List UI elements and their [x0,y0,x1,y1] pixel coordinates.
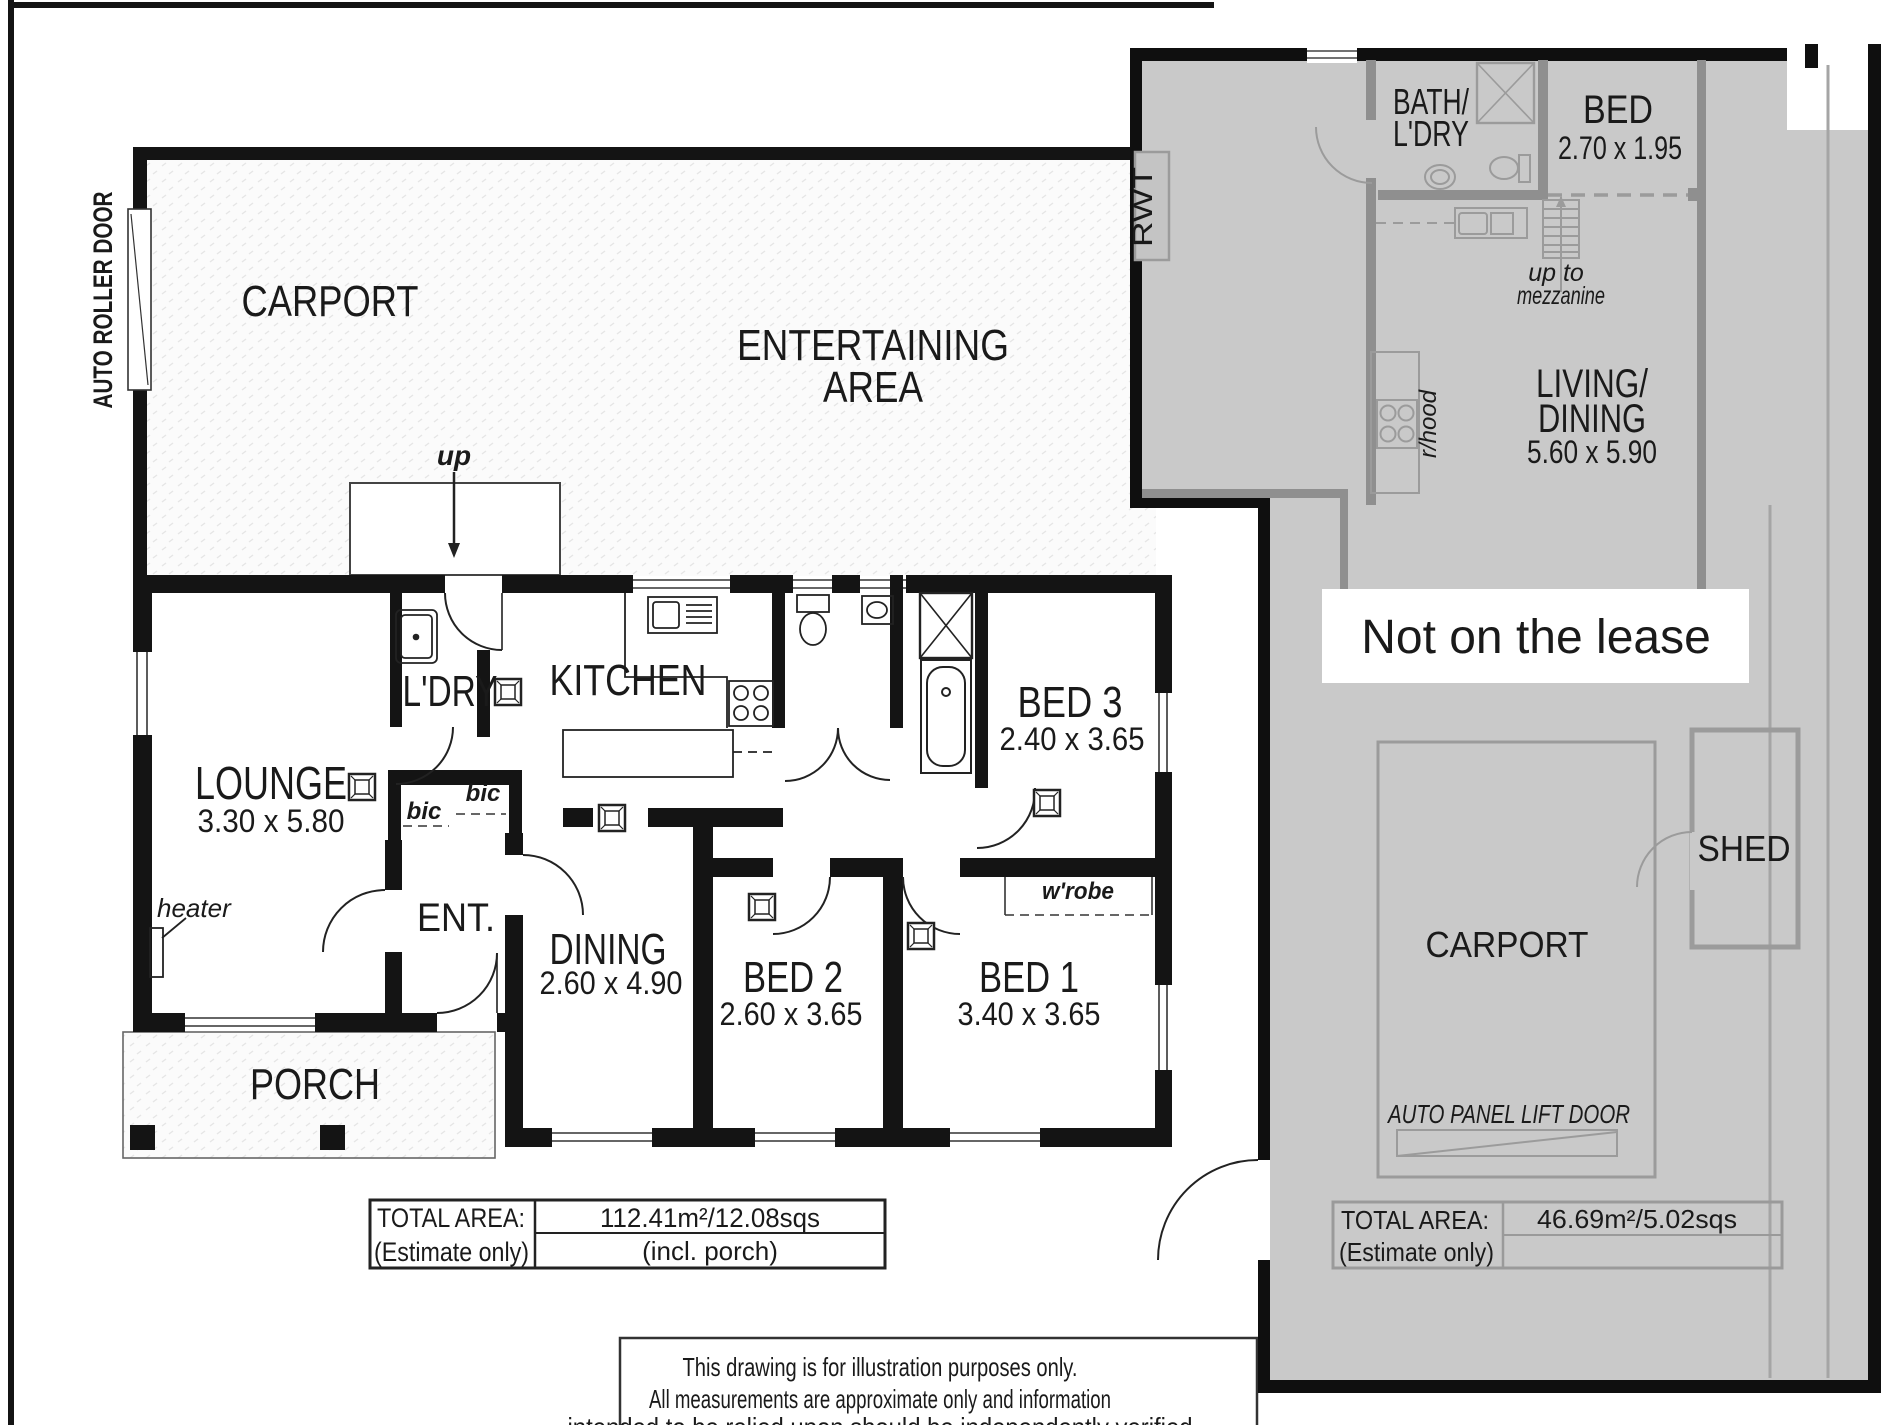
label-entertaining-2: AREA [823,363,924,412]
interior-walls [385,575,1157,1128]
label-dining-dims: 2.60 x 4.90 [540,965,683,1001]
overlay-plan: RWT BATH/ L'DRY BED 2.70 x 1.95 up to me… [1127,44,1881,1393]
disclaimer-line-1: This drawing is for illustration purpose… [683,1352,1078,1382]
overlay-label-upto-2: mezzanine [1517,282,1605,310]
overlay-label-carport: CARPORT [1426,924,1589,965]
laundry-door-arc [445,593,502,650]
overlay-label-bath-2: L'DRY [1393,113,1469,154]
kitchen-door-arc [785,728,838,781]
light-icon [349,774,375,800]
overlay-grey-fill [1142,54,1868,1384]
light-icon [1034,790,1060,816]
label-bed3-dims: 2.40 x 3.65 [1000,721,1145,757]
rear-gate-arc [1158,1160,1258,1260]
porch-post [130,1125,155,1150]
disclaimer-box: This drawing is for illustration purpose… [568,1338,1258,1425]
overlay-total-area-value: 46.69m²/5.02sqs [1537,1204,1737,1234]
label-lounge: LOUNGE [195,757,347,809]
kitchen-sink-icon [648,597,717,633]
porch-post [320,1125,345,1150]
total-area-label-1: TOTAL AREA: [377,1203,525,1233]
not-on-lease-label: Not on the lease [1322,589,1749,683]
total-area-note: (incl. porch) [642,1236,778,1266]
overlay-label-bed: BED [1583,88,1653,132]
overlay-total-area-label-1: TOTAL AREA: [1341,1205,1489,1235]
label-bed1-dims: 3.40 x 3.65 [958,996,1101,1032]
light-icon [495,679,521,705]
label-carport: CARPORT [242,277,419,326]
light-icon [599,805,625,831]
toilet-icon [797,595,829,645]
label-auto-roller-door: AUTO ROLLER DOOR [88,192,118,409]
label-bed1: BED 1 [979,953,1079,1002]
disclaimer-line-3: intended to be relied upon should be ind… [568,1412,1193,1425]
window-kitchen [633,580,730,588]
light-icon [749,894,775,920]
window-dining-bottom [552,1133,652,1141]
disclaimer-line-2: All measurements are approximate only an… [649,1384,1111,1414]
window-lounge-bottom [185,1018,315,1026]
total-area-label-2: (Estimate only) [374,1237,529,1267]
overlay-total-area-label-2: (Estimate only) [1339,1237,1494,1267]
floorplan-drawing: CARPORT ENTERTAINING AREA AUTO ROLLER DO… [0,0,1900,1425]
laundry-trough-icon [396,610,437,663]
window-lounge-left [137,652,147,735]
label-bed2: BED 2 [743,953,843,1002]
label-bic-right: bic [466,780,501,807]
basin-icon [862,596,893,624]
label-up: up [437,440,471,471]
label-bic-left: bic [407,798,442,825]
window-bed1-bottom [950,1133,1040,1141]
bathtub-icon [921,660,971,773]
window-bed2-bottom [755,1133,835,1141]
auto-roller-door [128,209,151,390]
total-area-value: 112.41m²/12.08sqs [600,1203,820,1233]
bed3-door-arc [977,788,1035,848]
overlay-label-rhood: r/hood [1415,389,1442,458]
label-lounge-dims: 3.30 x 5.80 [198,803,345,839]
light-icon [908,923,934,949]
cooktop-icon [729,681,773,726]
bed2-door-arc [773,877,830,934]
label-kitchen: KITCHEN [550,656,707,705]
label-bed2-dims: 2.60 x 3.65 [720,996,863,1032]
overlay-top-window [1307,46,1357,63]
label-heater: heater [157,893,232,923]
heater-icon [150,918,186,977]
label-ldry: L'DRY [403,667,498,716]
overlay-label-rwt: RWT [1127,167,1158,247]
label-wrobe: w'robe [1042,878,1114,905]
lounge-ent-door-arc [323,890,385,952]
overlay-label-living-dims: 5.60 x 5.90 [1527,434,1657,470]
window-wc [793,580,832,588]
overlay-label-shed: SHED [1698,828,1791,869]
overlay-label-auto-panel: AUTO PANEL LIFT DOOR [1386,1099,1630,1129]
floorplan-page: CARPORT ENTERTAINING AREA AUTO ROLLER DO… [0,0,1900,1425]
wc-door-arc [838,728,890,780]
label-porch: PORCH [250,1060,380,1109]
overlay-label-bed-dims: 2.70 x 1.95 [1558,130,1682,166]
label-bed3: BED 3 [1018,678,1123,727]
shower-icon [920,593,972,658]
front-door-arc [437,953,497,1013]
not-on-lease-text: Not on the lease [1361,611,1711,664]
ent-dining-door-arc [523,855,583,915]
label-ent: ENT. [417,896,495,940]
window-bed3-right [1159,693,1167,772]
window-bed1-right [1159,985,1167,1070]
total-area-table-main: TOTAL AREA: (Estimate only) 112.41m²/12.… [370,1200,885,1268]
